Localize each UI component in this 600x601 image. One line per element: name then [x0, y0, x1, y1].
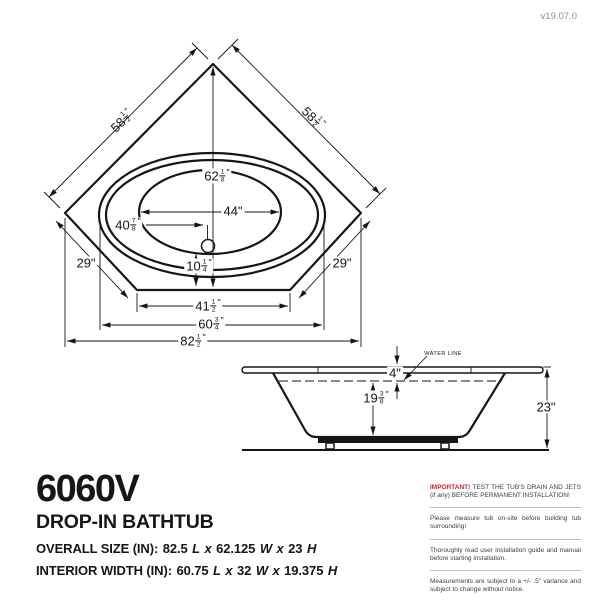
dim-rim-width-label: 6034" [196, 316, 225, 331]
interior-width-label: INTERIOR WIDTH (IN): [36, 563, 172, 578]
notice-guide: Thoroughly read user installation guide … [430, 539, 581, 570]
installation-notices: IMPORTANT! TEST THE TUB'S DRAIN AND JETS… [430, 484, 581, 601]
product-info: 6060V DROP-IN BATHTUB OVERALL SIZE (IN):… [36, 470, 338, 578]
product-type: DROP-IN BATHTUB [36, 511, 338, 534]
foot-right [441, 443, 449, 449]
fraction: 18 [220, 168, 226, 183]
overall-size-label: OVERALL SIZE (IN): [36, 541, 158, 556]
dim-interior-width-label: 44" [221, 205, 244, 218]
water-line-label: WATER LINE [424, 352, 462, 358]
model-number: 6060V [36, 470, 338, 508]
overall-size-spec: OVERALL SIZE (IN): 82.5 L x 62.125 W x 2… [36, 541, 338, 556]
fraction: 12 [211, 298, 217, 313]
fraction: 34 [214, 316, 220, 331]
fraction: 38 [379, 390, 385, 405]
notice-variance: Measurements are subject to a +/- .5" va… [430, 570, 581, 601]
notice-important: IMPORTANT! TEST THE TUB'S DRAIN AND JETS… [430, 484, 581, 507]
fraction: 12 [196, 333, 202, 348]
notice-measure: Please measure tub on-site before buildi… [430, 507, 581, 538]
dim-length-label: 6218" [202, 168, 231, 183]
side-view-dimension-lines [373, 346, 551, 448]
fraction: 14 [202, 258, 208, 273]
dim-front-edge-label: 4112" [193, 298, 222, 313]
fraction: 78 [131, 217, 137, 232]
dim-overall-height-label: 23" [534, 401, 557, 414]
important-highlight: IMPORTANT! [430, 484, 470, 491]
dim-rim-to-water-label: 4" [387, 367, 403, 380]
dim-overall-width-label: 8212" [178, 333, 207, 348]
dim-corner-left-label: 29" [74, 257, 97, 270]
dim-corner-right-label: 29" [330, 257, 353, 270]
foot-left [326, 443, 334, 449]
dim-water-depth-label: 1938" [361, 390, 390, 405]
interior-width-spec: INTERIOR WIDTH (IN): 60.75 L x 32 W x 19… [36, 563, 338, 578]
dim-drain-front-label: 1014" [184, 258, 213, 273]
dim-drain-offset-label: 4078" [113, 217, 142, 232]
